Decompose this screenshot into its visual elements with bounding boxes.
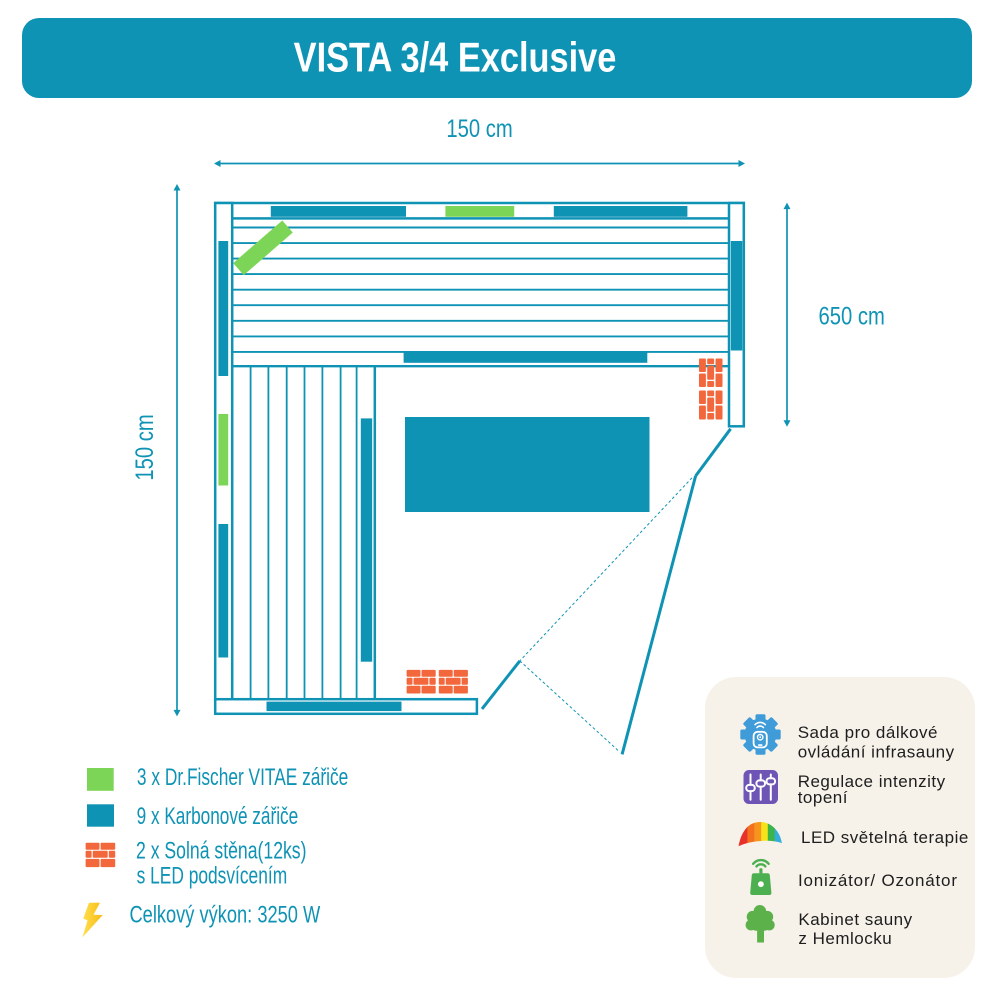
svg-text:9 x Karbonové zářiče: 9 x Karbonové zářiče	[137, 803, 299, 829]
svg-text:650 cm: 650 cm	[819, 301, 885, 330]
svg-text:topení: topení	[798, 788, 848, 807]
svg-text:z Hemlocku: z Hemlocku	[798, 929, 892, 948]
svg-text:2 x Solná stěna(12ks): 2 x Solná stěna(12ks)	[136, 838, 307, 864]
svg-text:s LED podsvícením: s LED podsvícením	[137, 863, 288, 889]
svg-text:Celkový výkon: 3250 W: Celkový výkon: 3250 W	[130, 901, 321, 928]
svg-text:VISTA 3/4 Exclusive: VISTA 3/4 Exclusive	[294, 34, 617, 81]
svg-text:LED světelná terapie: LED světelná terapie	[801, 828, 969, 847]
svg-text:3 x Dr.Fischer VITAE zářiče: 3 x Dr.Fischer VITAE zářiče	[137, 764, 348, 790]
svg-text:ovládání infrasauny: ovládání infrasauny	[798, 743, 955, 762]
svg-text:Ionizátor/ Ozonátor: Ionizátor/ Ozonátor	[798, 871, 958, 890]
svg-text:150 cm: 150 cm	[130, 414, 159, 480]
svg-text:150 cm: 150 cm	[446, 114, 512, 143]
svg-text:Kabinet sauny: Kabinet sauny	[798, 910, 912, 929]
svg-text:Sada pro dálkové: Sada pro dálkové	[798, 723, 938, 742]
